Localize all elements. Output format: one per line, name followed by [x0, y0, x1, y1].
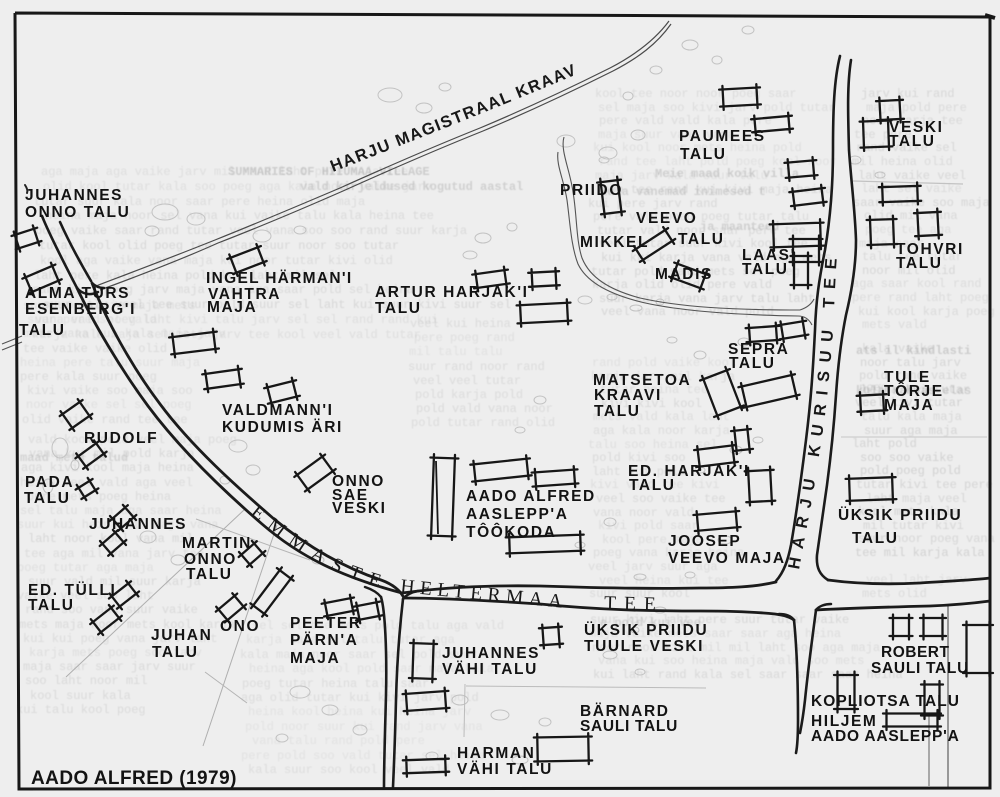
- svg-text:MAJA: MAJA: [884, 397, 934, 414]
- svg-text:HARMAN: HARMAN: [457, 745, 535, 762]
- svg-text:TALU: TALU: [594, 403, 641, 420]
- svg-text:TALU: TALU: [852, 530, 899, 547]
- svg-text:TALU: TALU: [678, 231, 725, 248]
- svg-text:ONNO TALU: ONNO TALU: [25, 204, 130, 221]
- svg-text:AADO ALFRED (1979): AADO ALFRED (1979): [31, 768, 237, 789]
- svg-text:JUHANNES: JUHANNES: [89, 516, 187, 533]
- svg-text:TALU: TALU: [896, 255, 943, 272]
- svg-text:TALU: TALU: [680, 146, 727, 163]
- svg-text:VÄHI TALU: VÄHI TALU: [457, 761, 553, 778]
- svg-text:MADIS: MADIS: [655, 266, 713, 283]
- svg-text:HELTERMAA: HELTERMAA: [400, 576, 569, 613]
- svg-text:AASLEPP'A: AASLEPP'A: [466, 506, 569, 523]
- svg-text:TALU: TALU: [629, 477, 676, 494]
- svg-text:MIKKEL: MIKKEL: [580, 234, 649, 251]
- svg-text:SAULI TALU: SAULI TALU: [580, 718, 678, 735]
- svg-text:VÄHI TALU: VÄHI TALU: [442, 661, 538, 678]
- svg-text:INGEL HÄRMAN'I: INGEL HÄRMAN'I: [206, 270, 352, 287]
- svg-text:AADO AASLEPP'A: AADO AASLEPP'A: [811, 728, 960, 745]
- svg-text:HARJU MAGISTRAAL KRAAV: HARJU MAGISTRAAL KRAAV: [328, 61, 580, 176]
- svg-text:TALU: TALU: [375, 300, 422, 317]
- svg-text:TALU: TALU: [28, 597, 75, 614]
- svg-text:ALMA TURS: ALMA TURS: [25, 285, 130, 302]
- svg-text:JUHAN: JUHAN: [151, 627, 212, 644]
- svg-text:VEEVO MAJA: VEEVO MAJA: [668, 550, 786, 567]
- svg-text:PAUMEES: PAUMEES: [679, 128, 766, 145]
- svg-text:RUDOLF: RUDOLF: [84, 430, 158, 447]
- svg-text:SAULI TALU: SAULI TALU: [871, 660, 969, 677]
- svg-text:TALU: TALU: [729, 355, 776, 372]
- svg-text:MARTIN: MARTIN: [182, 535, 252, 552]
- svg-text:TALU: TALU: [152, 644, 199, 661]
- svg-text:JOOSEP: JOOSEP: [668, 533, 741, 550]
- svg-text:AADO ALFRED: AADO ALFRED: [466, 488, 596, 505]
- svg-text:ROBERT: ROBERT: [881, 644, 949, 661]
- svg-text:TEE: TEE: [604, 593, 664, 616]
- svg-text:VESKI: VESKI: [332, 500, 387, 517]
- svg-text:TÔÔKODA: TÔÔKODA: [466, 523, 556, 541]
- svg-text:JUHANNES: JUHANNES: [442, 645, 540, 662]
- svg-text:ÜKSIK PRIIDU: ÜKSIK PRIIDU: [584, 622, 708, 639]
- svg-text:TALU: TALU: [19, 322, 66, 339]
- svg-text:MAJA: MAJA: [207, 299, 257, 316]
- svg-text:VALDMANN'I: VALDMANN'I: [222, 402, 334, 419]
- svg-text:KUDUMIS ÄRI: KUDUMIS ÄRI: [222, 419, 343, 436]
- svg-text:TALU: TALU: [742, 261, 789, 278]
- svg-text:PADA: PADA: [25, 474, 74, 491]
- svg-text:ARTUR HARJAK'I: ARTUR HARJAK'I: [375, 284, 529, 301]
- svg-text:ÜKSIK PRIIDU: ÜKSIK PRIIDU: [838, 507, 962, 524]
- svg-text:JUHANNES: JUHANNES: [25, 187, 123, 204]
- svg-text:ESENBERG'I: ESENBERG'I: [25, 301, 136, 318]
- svg-text:MAJA: MAJA: [290, 650, 340, 667]
- svg-text:ONO: ONO: [220, 618, 260, 635]
- svg-text:TUULE VESKI: TUULE VESKI: [584, 638, 704, 655]
- svg-text:TALU: TALU: [24, 490, 71, 507]
- svg-text:TALU: TALU: [889, 133, 936, 150]
- svg-text:PEETER: PEETER: [290, 615, 362, 632]
- svg-text:KOPLIOTSA TALU: KOPLIOTSA TALU: [811, 693, 960, 710]
- svg-text:VEEVO: VEEVO: [636, 210, 697, 227]
- svg-text:PÄRN'A: PÄRN'A: [290, 632, 358, 649]
- svg-text:TALU: TALU: [186, 566, 233, 583]
- svg-text:KRAAVI: KRAAVI: [594, 387, 662, 404]
- svg-text:PRIIDO: PRIIDO: [560, 182, 623, 199]
- svg-text:HARJU KURISUU TEE: HARJU KURISUU TEE: [785, 249, 841, 571]
